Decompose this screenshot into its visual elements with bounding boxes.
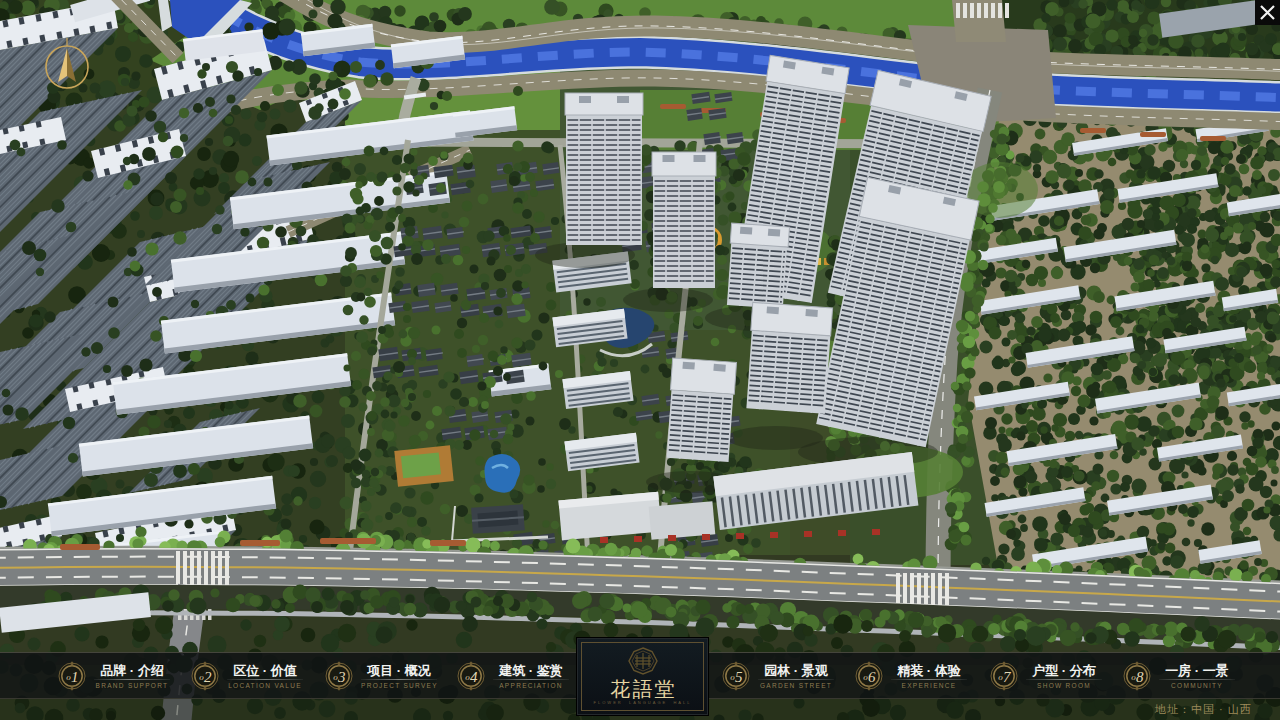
svg-text:4: 4 xyxy=(470,669,478,685)
svg-text:6: 6 xyxy=(868,669,876,685)
svg-text:1: 1 xyxy=(71,669,79,685)
svg-text:5: 5 xyxy=(735,669,743,685)
svg-text:3: 3 xyxy=(337,669,346,685)
svg-text:2: 2 xyxy=(204,669,212,685)
svg-text:8: 8 xyxy=(1136,669,1144,685)
